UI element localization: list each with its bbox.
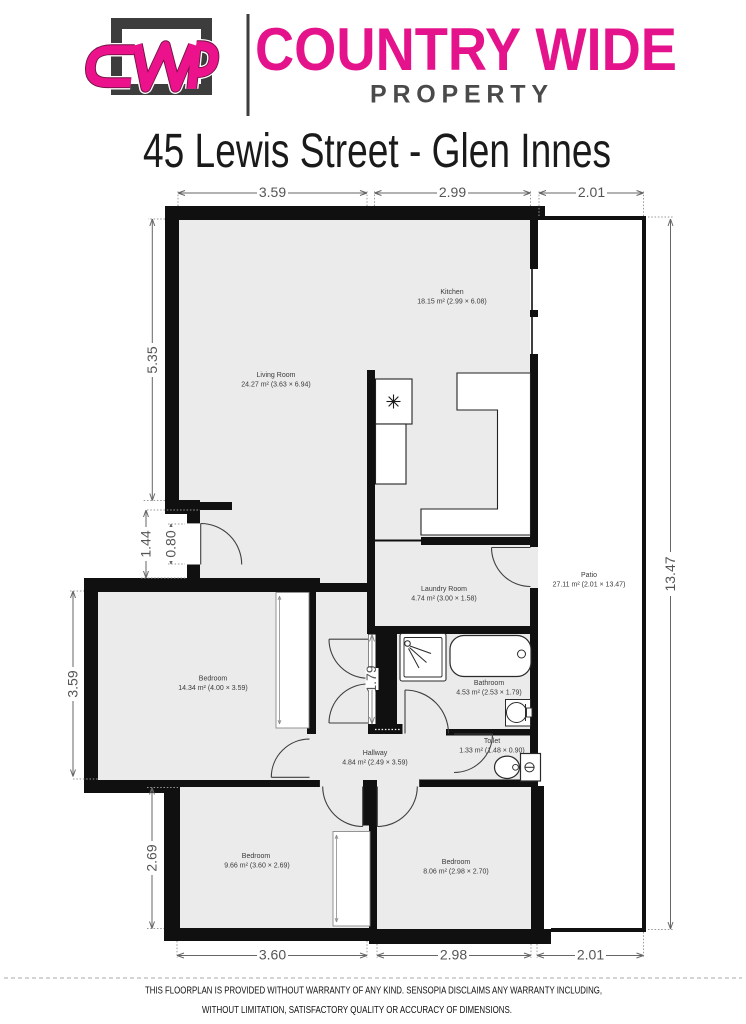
svg-text:2.99: 2.99 <box>439 184 466 200</box>
svg-text:Laundry Room: Laundry Room <box>421 586 467 593</box>
svg-text:24.27 m² (3.63 × 6.94): 24.27 m² (3.63 × 6.94) <box>241 382 310 389</box>
svg-text:3.59: 3.59 <box>64 670 80 697</box>
svg-text:3.59: 3.59 <box>259 184 286 200</box>
svg-text:1.33 m² (1.48 × 0.90): 1.33 m² (1.48 × 0.90) <box>459 748 525 755</box>
svg-text:4.53 m² (2.53 × 1.79): 4.53 m² (2.53 × 1.79) <box>456 690 522 697</box>
svg-text:Bedroom: Bedroom <box>242 853 271 860</box>
svg-text:COUNTRY WIDE: COUNTRY WIDE <box>255 16 677 83</box>
svg-text:Patio: Patio <box>581 572 597 579</box>
svg-text:14.34 m² (4.00 × 3.59): 14.34 m² (4.00 × 3.59) <box>178 685 247 692</box>
svg-text:1.44: 1.44 <box>137 530 153 557</box>
svg-text:WITHOUT LIMITATION, SATISFACTO: WITHOUT LIMITATION, SATISFACTORY QUALITY… <box>202 1005 512 1016</box>
svg-text:Bedroom: Bedroom <box>199 676 228 683</box>
svg-text:2.01: 2.01 <box>578 184 605 200</box>
svg-text:8.06 m² (2.98 × 2.70): 8.06 m² (2.98 × 2.70) <box>423 869 489 876</box>
svg-text:Hallway: Hallway <box>363 750 388 757</box>
svg-text:9.66 m² (3.60 × 2.69): 9.66 m² (3.60 × 2.69) <box>224 863 290 870</box>
svg-text:3.60: 3.60 <box>259 947 286 963</box>
svg-text:2.69: 2.69 <box>143 844 159 871</box>
svg-text:18.15 m² (2.99 × 6.08): 18.15 m² (2.99 × 6.08) <box>417 299 486 306</box>
svg-text:2.98: 2.98 <box>440 947 467 963</box>
svg-text:13.47: 13.47 <box>662 556 678 591</box>
svg-text:2.01: 2.01 <box>577 947 604 963</box>
svg-text:4.84 m² (2.49 × 3.59): 4.84 m² (2.49 × 3.59) <box>342 760 408 767</box>
svg-text:27.11 m² (2.01 × 13.47): 27.11 m² (2.01 × 13.47) <box>553 582 626 589</box>
svg-text:1.79: 1.79 <box>363 665 379 692</box>
svg-text:Living Room: Living Room <box>257 372 296 379</box>
svg-text:Kitchen: Kitchen <box>440 289 463 296</box>
svg-text:PROPERTY: PROPERTY <box>370 81 548 109</box>
svg-text:45 Lewis Street - Glen Innes: 45 Lewis Street - Glen Innes <box>143 125 611 178</box>
svg-text:THIS FLOORPLAN IS PROVIDED WIT: THIS FLOORPLAN IS PROVIDED WITHOUT WARRA… <box>145 986 602 997</box>
svg-text:Bedroom: Bedroom <box>442 859 471 866</box>
svg-text:Bathroom: Bathroom <box>474 680 505 687</box>
svg-text:5.35: 5.35 <box>144 346 160 373</box>
svg-text:4.74 m² (3.00 × 1.58): 4.74 m² (3.00 × 1.58) <box>411 596 477 603</box>
svg-text:Toilet: Toilet <box>484 738 500 745</box>
svg-text:0.80: 0.80 <box>162 530 178 557</box>
